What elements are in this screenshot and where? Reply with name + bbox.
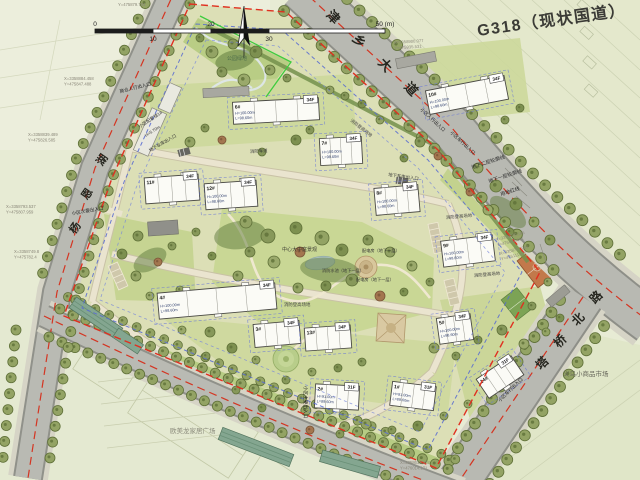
street-tree — [66, 327, 76, 337]
street-tree — [353, 427, 363, 437]
street-tree — [132, 323, 141, 332]
street-tree — [238, 412, 248, 422]
street-tree — [546, 307, 557, 318]
street-tree — [215, 359, 224, 368]
floor-tag: 34F — [303, 95, 317, 104]
context-label: 欧美龙家居广场 — [170, 426, 216, 435]
street-tree — [160, 335, 169, 344]
plan-label: 配电房（地下一层） — [356, 276, 394, 283]
tree — [306, 426, 314, 434]
street-tree — [404, 120, 415, 131]
street-tree — [262, 390, 272, 400]
floor-tag: 34F — [455, 311, 470, 321]
floor-tag: 34F — [183, 171, 198, 180]
tree — [238, 74, 250, 86]
floor-tag: 34F — [403, 182, 418, 191]
svg-text:X=3358613.178: X=3358613.178 — [400, 460, 430, 465]
street-tree — [264, 422, 274, 432]
street-tree — [451, 455, 460, 464]
scale-bar-segment — [153, 29, 211, 33]
svg-text:X=3358839.489: X=3358839.489 — [28, 132, 58, 137]
svg-text:8#: 8# — [376, 190, 382, 196]
context-label: 义乌小商品市场 — [563, 369, 609, 378]
tree — [497, 325, 507, 335]
street-tree — [527, 168, 538, 179]
street-tree — [63, 342, 73, 352]
street-tree — [443, 464, 453, 474]
square-plaza — [376, 313, 406, 343]
street-tree — [572, 357, 583, 368]
svg-text:34F: 34F — [349, 136, 357, 141]
street-tree — [452, 443, 463, 454]
street-tree — [395, 433, 404, 442]
street-tree — [511, 442, 522, 453]
street-tree — [85, 123, 95, 133]
svg-text:12#: 12# — [206, 186, 215, 193]
svg-text:34F: 34F — [186, 173, 194, 179]
tree — [245, 247, 255, 257]
street-tree — [555, 381, 566, 392]
svg-text:11#: 11# — [146, 180, 155, 187]
floor-tag: 34F — [335, 322, 350, 331]
svg-text:Y=475807.959: Y=475807.959 — [6, 210, 34, 215]
street-tree — [602, 238, 613, 249]
coordinate-label: X=3358613.178Y=476014.171 — [400, 460, 430, 471]
street-tree — [528, 418, 539, 429]
tree — [361, 419, 371, 429]
coordinate-label: X=3358793.537Y=475807.959 — [6, 204, 36, 215]
street-tree — [493, 466, 504, 477]
scale-label: 0 — [93, 21, 97, 28]
svg-text:3#: 3# — [255, 326, 261, 332]
tree — [258, 404, 266, 412]
floor-tag: 34F — [284, 318, 299, 327]
floor-tag: 31F — [344, 382, 358, 391]
street-tree — [135, 369, 145, 379]
street-tree — [53, 406, 63, 416]
street-tree — [50, 421, 60, 431]
street-tree — [55, 304, 65, 314]
tree — [201, 124, 209, 132]
street-tree — [42, 252, 52, 262]
street-tree — [242, 371, 251, 380]
scale-label: 10 — [149, 36, 157, 43]
tree — [208, 252, 216, 260]
street-tree — [133, 14, 143, 24]
street-tree — [118, 317, 127, 326]
tree — [542, 328, 550, 336]
street-tree — [0, 436, 10, 446]
svg-text:X=3358793.537: X=3358793.537 — [6, 204, 36, 209]
circular-lawn — [273, 346, 299, 372]
svg-text:Y=475782.4: Y=475782.4 — [14, 255, 37, 260]
street-tree — [55, 390, 65, 400]
svg-text:9#: 9# — [443, 243, 449, 250]
coordinate-label: X=3358749.8Y=475782.4 — [14, 249, 40, 260]
svg-text:34F: 34F — [287, 320, 296, 326]
street-tree — [38, 268, 48, 278]
floor-tag: 34F — [346, 133, 360, 142]
street-tree — [92, 107, 102, 117]
street-tree — [529, 332, 540, 343]
street-tree — [251, 417, 261, 427]
tree — [388, 426, 396, 434]
scale-bar-segment — [95, 29, 153, 33]
street-tree — [6, 373, 16, 383]
street-tree — [303, 438, 313, 448]
street-tree — [546, 393, 557, 404]
tree — [228, 39, 238, 49]
tree — [261, 229, 275, 243]
tree — [434, 152, 442, 160]
street-tree — [187, 347, 196, 356]
street-tree — [577, 215, 588, 226]
floor-tag: 34F — [259, 280, 274, 289]
street-tree — [146, 329, 155, 338]
plan-label: 配电房（地下一层） — [362, 247, 400, 254]
street-tree — [409, 438, 418, 447]
tree — [252, 356, 260, 364]
tree — [308, 368, 316, 376]
svg-text:7#: 7# — [321, 141, 327, 147]
tree — [240, 216, 252, 228]
tree — [168, 242, 176, 250]
street-tree — [212, 401, 222, 411]
street-tree — [223, 373, 233, 383]
tree — [544, 278, 552, 286]
svg-text:Y=475826.585: Y=475826.585 — [28, 138, 56, 143]
street-tree — [113, 61, 123, 71]
street-tree — [552, 192, 563, 203]
street-tree — [74, 284, 84, 294]
tree — [326, 86, 334, 94]
street-tree — [515, 156, 526, 167]
street-tree — [122, 364, 132, 374]
svg-text:5#: 5# — [439, 320, 446, 327]
street-tree — [316, 40, 327, 51]
street-tree — [48, 437, 58, 447]
plan-label: 公园绿地 — [227, 55, 247, 62]
tree — [519, 339, 529, 349]
street-tree — [58, 374, 68, 384]
tree — [268, 256, 280, 268]
svg-text:Y=475879.704: Y=475879.704 — [118, 2, 146, 7]
svg-text:31F: 31F — [424, 384, 433, 390]
tree — [185, 137, 195, 147]
plan-label: 消防登高场地 — [284, 301, 311, 308]
street-tree — [120, 45, 130, 55]
street-tree — [491, 132, 502, 143]
tree — [415, 137, 425, 147]
street-tree — [52, 219, 62, 229]
street-tree — [275, 395, 285, 405]
street-tree — [469, 418, 480, 429]
street-tree — [354, 74, 365, 85]
street-tree — [66, 170, 76, 180]
svg-text:X=3358884.458: X=3358884.458 — [64, 76, 94, 81]
street-tree — [0, 452, 8, 462]
street-tree — [103, 186, 113, 196]
svg-text:34F: 34F — [338, 324, 346, 330]
street-tree — [1, 421, 11, 431]
street-tree — [391, 109, 402, 120]
street-tree — [391, 443, 401, 453]
tree — [341, 92, 349, 100]
street-tree — [62, 187, 72, 197]
tree — [375, 291, 385, 301]
tree — [283, 74, 291, 82]
site-plan-page: 6#H=100.00mL=98.60m34F10#H=100.00mL=98.6… — [0, 0, 640, 480]
street-tree — [581, 345, 592, 356]
svg-text:4#: 4# — [159, 295, 165, 301]
scale-bar-segment — [269, 29, 385, 33]
tree — [545, 235, 555, 245]
street-tree — [9, 341, 19, 351]
tree — [321, 281, 331, 291]
tree — [440, 412, 448, 420]
street-tree — [537, 406, 548, 417]
street-tree — [564, 203, 575, 214]
tree — [218, 136, 226, 144]
street-tree — [589, 226, 600, 237]
street-tree — [11, 325, 21, 335]
coordinate-label: Y=475879.704 — [118, 2, 146, 7]
coordinate-label: X=3358839.489Y=475826.585 — [28, 132, 58, 143]
tree — [336, 430, 344, 438]
street-tree — [341, 63, 352, 74]
tree — [407, 261, 417, 271]
floor-tag: 34F — [241, 177, 256, 186]
street-tree — [614, 249, 625, 260]
tree — [196, 34, 204, 42]
plan-label: 中心大中庭景观 — [282, 246, 317, 253]
street-tree — [199, 396, 209, 406]
street-tree — [186, 390, 196, 400]
tree — [265, 65, 275, 75]
svg-text:31F: 31F — [347, 385, 355, 390]
tree — [529, 217, 539, 227]
street-tree — [366, 86, 377, 97]
street-tree — [99, 92, 109, 102]
tree — [117, 249, 127, 259]
street-tree — [96, 353, 106, 363]
street-tree — [161, 380, 171, 390]
tree — [400, 288, 408, 296]
street-tree — [277, 428, 287, 438]
street-tree — [78, 138, 88, 148]
master-plan-canvas: 6#H=100.00mL=98.60m34F10#H=100.00mL=98.6… — [0, 0, 640, 480]
tree — [290, 222, 302, 234]
street-tree — [339, 411, 348, 420]
street-tree — [548, 265, 559, 276]
scale-label: 20 — [207, 21, 215, 28]
street-tree — [5, 389, 15, 399]
svg-text:34F: 34F — [263, 282, 272, 288]
tree — [205, 327, 215, 337]
tree — [133, 231, 143, 241]
tree — [556, 314, 564, 322]
plan-label: 消防水池（地下一层） — [322, 267, 364, 274]
coordinate-label: X=3358900.077Y=475935.531 — [394, 38, 425, 51]
street-tree — [290, 433, 300, 443]
street-tree — [503, 144, 514, 155]
svg-text:34F: 34F — [406, 184, 415, 190]
tree — [315, 231, 329, 245]
floor-tag: 31F — [421, 382, 436, 392]
tree — [217, 67, 227, 77]
tree — [528, 302, 536, 310]
floor-tag: 34F — [477, 232, 492, 242]
street-tree — [148, 375, 158, 385]
tree — [363, 235, 373, 245]
svg-text:34F: 34F — [480, 234, 489, 240]
svg-text:Y=476014.171: Y=476014.171 — [400, 466, 428, 471]
street-tree — [519, 430, 530, 441]
tree — [293, 283, 303, 293]
street-tree — [256, 377, 265, 386]
street-tree — [83, 348, 93, 358]
plan-label: 小区主要出入口 — [302, 386, 309, 419]
street-tree — [379, 97, 390, 108]
street-tree — [171, 352, 181, 362]
svg-text:1#: 1# — [394, 384, 400, 391]
street-tree — [45, 453, 55, 463]
street-tree — [429, 74, 440, 85]
street-tree — [283, 389, 292, 398]
tree — [131, 271, 141, 281]
street-tree — [354, 5, 365, 16]
tree — [336, 244, 348, 256]
scale-label: 50 (m) — [376, 21, 395, 28]
tree — [452, 352, 460, 360]
svg-text:Y=475847.488: Y=475847.488 — [64, 82, 92, 87]
tree — [516, 104, 524, 112]
street-tree — [143, 92, 153, 102]
street-tree — [178, 15, 188, 25]
street-tree — [502, 454, 513, 465]
svg-text:34F: 34F — [306, 97, 314, 102]
street-tree — [89, 235, 99, 245]
street-tree — [381, 470, 391, 480]
street-tree — [479, 120, 490, 131]
street-tree — [461, 430, 472, 441]
tree — [291, 135, 301, 145]
street-tree — [599, 321, 610, 332]
street-tree — [57, 203, 67, 213]
street-tree — [404, 448, 414, 458]
street-tree — [590, 333, 601, 344]
street-tree — [61, 358, 71, 368]
tree — [334, 364, 342, 372]
street-tree — [8, 357, 18, 367]
tree — [429, 343, 439, 353]
street-tree — [540, 180, 551, 191]
tree — [206, 46, 218, 58]
tree — [192, 228, 200, 236]
coordinate-label: X=3358884.458Y=475847.488 — [64, 76, 94, 87]
tree — [154, 258, 162, 266]
svg-text:34F: 34F — [244, 179, 252, 185]
street-tree — [109, 359, 119, 369]
tree — [282, 376, 290, 384]
street-tree — [478, 406, 489, 417]
tree — [358, 358, 366, 366]
tree — [426, 278, 434, 286]
street-tree — [3, 405, 13, 415]
tree — [306, 126, 314, 134]
tree — [227, 343, 237, 353]
tree — [501, 116, 509, 124]
street-tree — [47, 236, 57, 246]
street-tree — [106, 76, 116, 86]
scale-bar-segment — [211, 29, 269, 33]
street-tree — [225, 406, 235, 416]
tree — [250, 46, 262, 58]
tree — [474, 336, 482, 344]
street-tree — [174, 385, 184, 395]
svg-text:6#: 6# — [235, 104, 241, 110]
street-tree — [44, 332, 54, 342]
street-tree — [115, 154, 125, 164]
street-tree — [71, 154, 81, 164]
scale-label: 30 — [265, 36, 273, 43]
street-tree — [228, 365, 237, 374]
tree — [233, 271, 243, 281]
svg-text:13#: 13# — [306, 330, 315, 337]
svg-text:X=3358749.8: X=3358749.8 — [14, 249, 40, 254]
street-tree — [270, 383, 279, 392]
